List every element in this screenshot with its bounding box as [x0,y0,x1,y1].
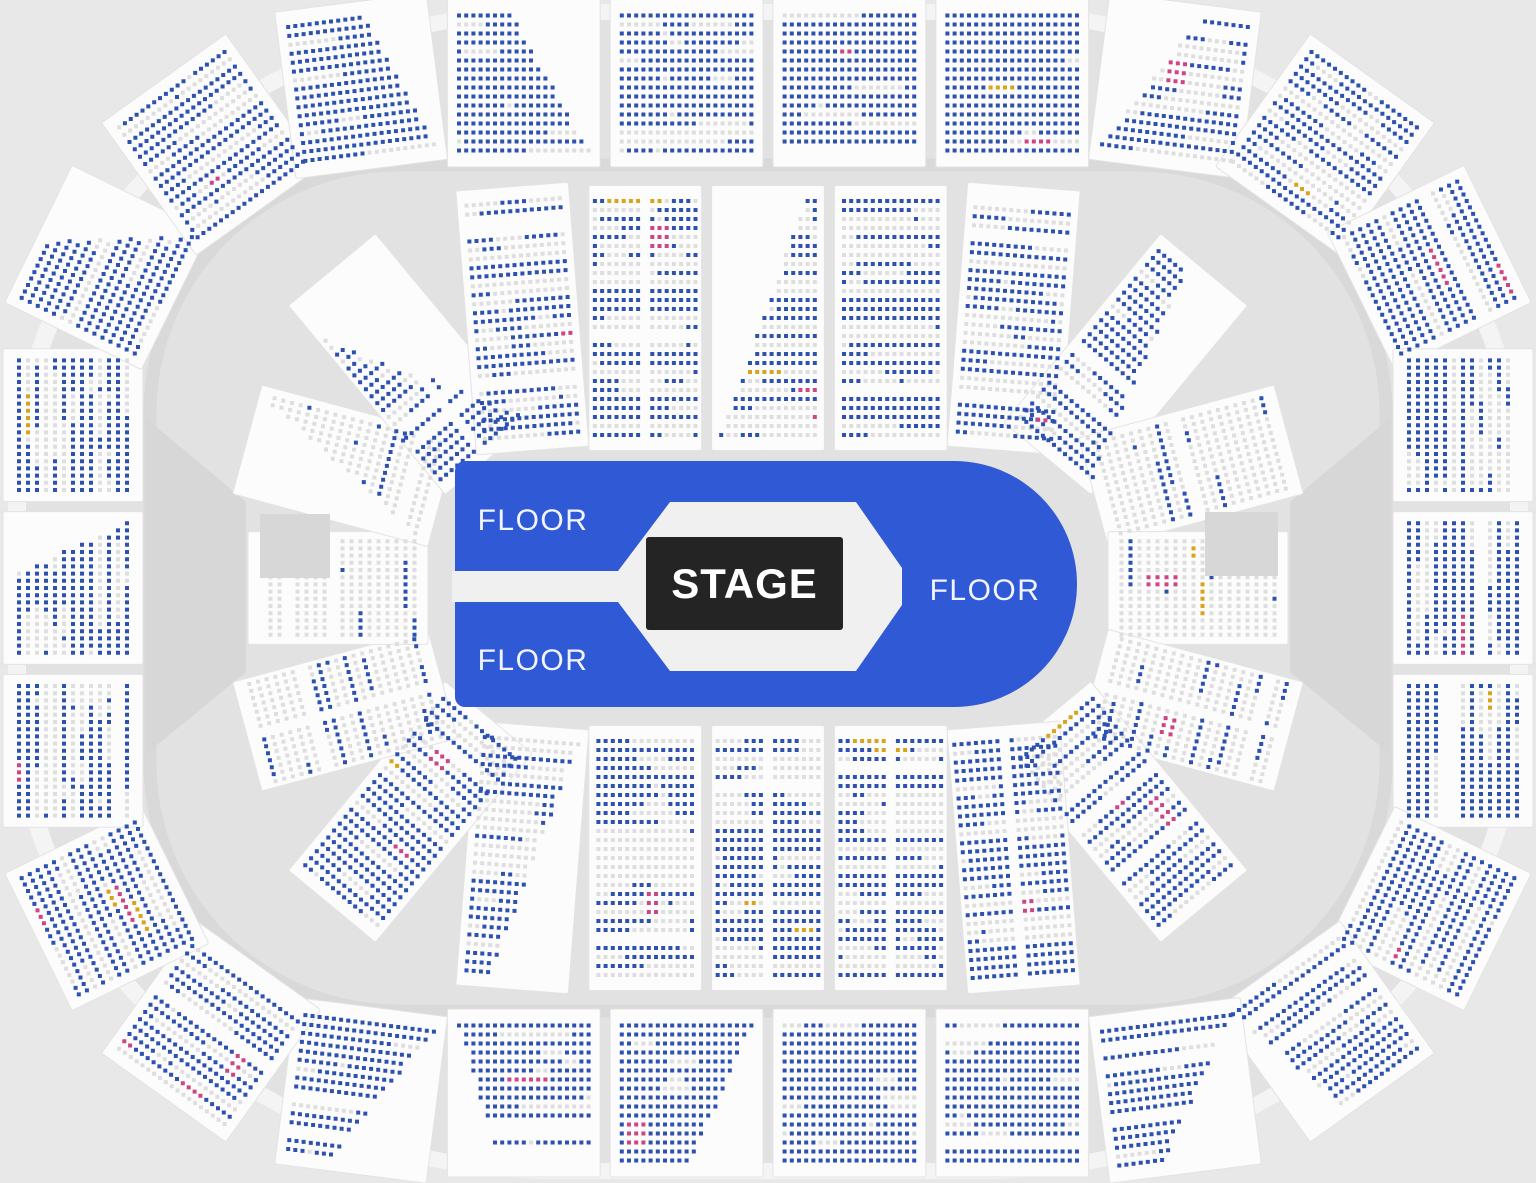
section-panel[interactable] [834,726,947,991]
floor-divider-slot [452,571,624,602]
arena-seat-map: FLOOR FLOOR FLOOR STAGE [0,0,1536,1183]
seat-section[interactable] [834,726,947,991]
suite-box [260,514,330,578]
section-panel[interactable] [712,726,825,991]
seat-section[interactable] [589,186,702,451]
suite-box [1205,512,1278,576]
section-panel[interactable] [589,186,702,451]
section-panel[interactable] [1088,997,1261,1183]
stage [646,537,843,630]
seat-map-canvas [0,0,1536,1183]
seat-section[interactable] [1088,997,1261,1183]
seat-section[interactable] [712,726,825,991]
